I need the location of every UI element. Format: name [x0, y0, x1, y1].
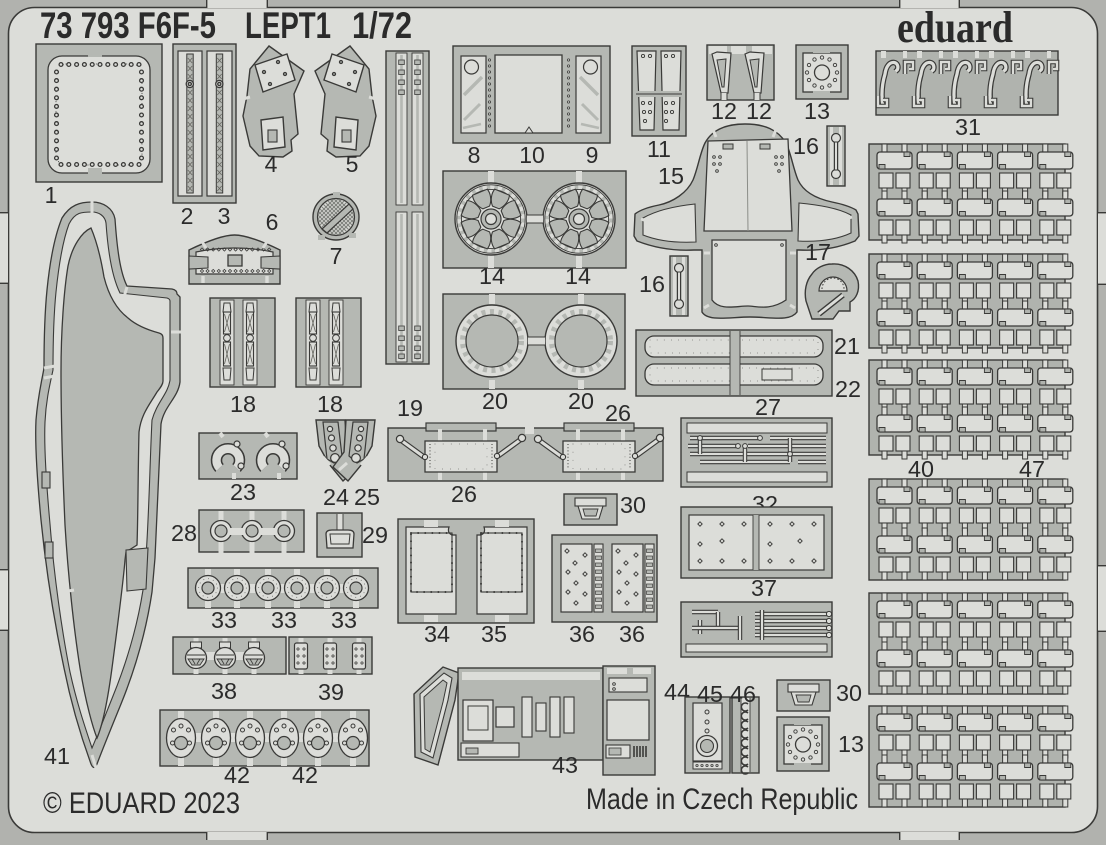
- svg-text:18: 18: [230, 391, 256, 417]
- svg-text:42: 42: [292, 762, 318, 788]
- svg-text:25: 25: [354, 484, 380, 510]
- svg-text:73 793 F6F-5: 73 793 F6F-5: [40, 5, 216, 46]
- svg-text:13: 13: [804, 98, 830, 124]
- svg-text:14: 14: [565, 263, 591, 289]
- svg-text:16: 16: [793, 133, 819, 159]
- svg-text:17: 17: [805, 239, 831, 265]
- svg-text:6: 6: [266, 209, 279, 235]
- svg-text:33: 33: [271, 607, 297, 633]
- svg-text:8: 8: [468, 142, 481, 168]
- svg-text:12: 12: [746, 98, 772, 124]
- svg-text:36: 36: [619, 621, 645, 647]
- svg-text:Made in Czech Republic: Made in Czech Republic: [586, 783, 858, 816]
- svg-text:28: 28: [171, 520, 197, 546]
- svg-text:5: 5: [346, 151, 359, 177]
- svg-text:15: 15: [658, 163, 684, 189]
- svg-text:24: 24: [323, 484, 349, 510]
- svg-text:43: 43: [552, 752, 578, 778]
- svg-text:47: 47: [1019, 456, 1045, 482]
- svg-text:16: 16: [639, 271, 665, 297]
- svg-text:20: 20: [482, 388, 508, 414]
- svg-text:12: 12: [711, 98, 737, 124]
- svg-text:33: 33: [331, 607, 357, 633]
- svg-text:2: 2: [181, 203, 194, 229]
- svg-text:3: 3: [218, 203, 231, 229]
- svg-text:10: 10: [519, 142, 545, 168]
- svg-text:33: 33: [211, 607, 237, 633]
- svg-text:21: 21: [834, 333, 860, 359]
- svg-text:45: 45: [697, 681, 723, 707]
- svg-text:46: 46: [730, 681, 756, 707]
- svg-text:eduard: eduard: [897, 3, 1013, 52]
- svg-text:35: 35: [481, 621, 507, 647]
- svg-text:36: 36: [569, 621, 595, 647]
- svg-text:22: 22: [835, 376, 861, 402]
- svg-text:1: 1: [45, 182, 58, 208]
- svg-text:23: 23: [230, 479, 256, 505]
- svg-text:20: 20: [568, 388, 594, 414]
- svg-text:31: 31: [955, 114, 981, 140]
- svg-text:30: 30: [836, 680, 862, 706]
- svg-text:11: 11: [647, 136, 671, 162]
- svg-text:27: 27: [755, 394, 781, 420]
- svg-text:30: 30: [620, 492, 646, 518]
- svg-text:41: 41: [44, 743, 70, 769]
- svg-text:39: 39: [318, 679, 344, 705]
- svg-text:18: 18: [317, 391, 343, 417]
- svg-text:LEPT1: LEPT1: [245, 5, 331, 46]
- svg-text:38: 38: [211, 678, 237, 704]
- svg-text:26: 26: [451, 481, 477, 507]
- svg-text:19: 19: [397, 395, 423, 421]
- svg-text:26: 26: [605, 400, 631, 426]
- svg-text:42: 42: [224, 762, 250, 788]
- svg-text:1/72: 1/72: [352, 5, 412, 46]
- svg-text:© EDUARD 2023: © EDUARD 2023: [43, 787, 240, 820]
- svg-text:9: 9: [586, 142, 599, 168]
- svg-text:4: 4: [265, 151, 278, 177]
- svg-text:7: 7: [330, 243, 343, 269]
- svg-text:14: 14: [479, 263, 505, 289]
- svg-text:29: 29: [362, 522, 388, 548]
- svg-text:40: 40: [908, 456, 934, 482]
- svg-text:34: 34: [424, 621, 450, 647]
- svg-text:13: 13: [838, 731, 864, 757]
- svg-text:37: 37: [751, 575, 777, 601]
